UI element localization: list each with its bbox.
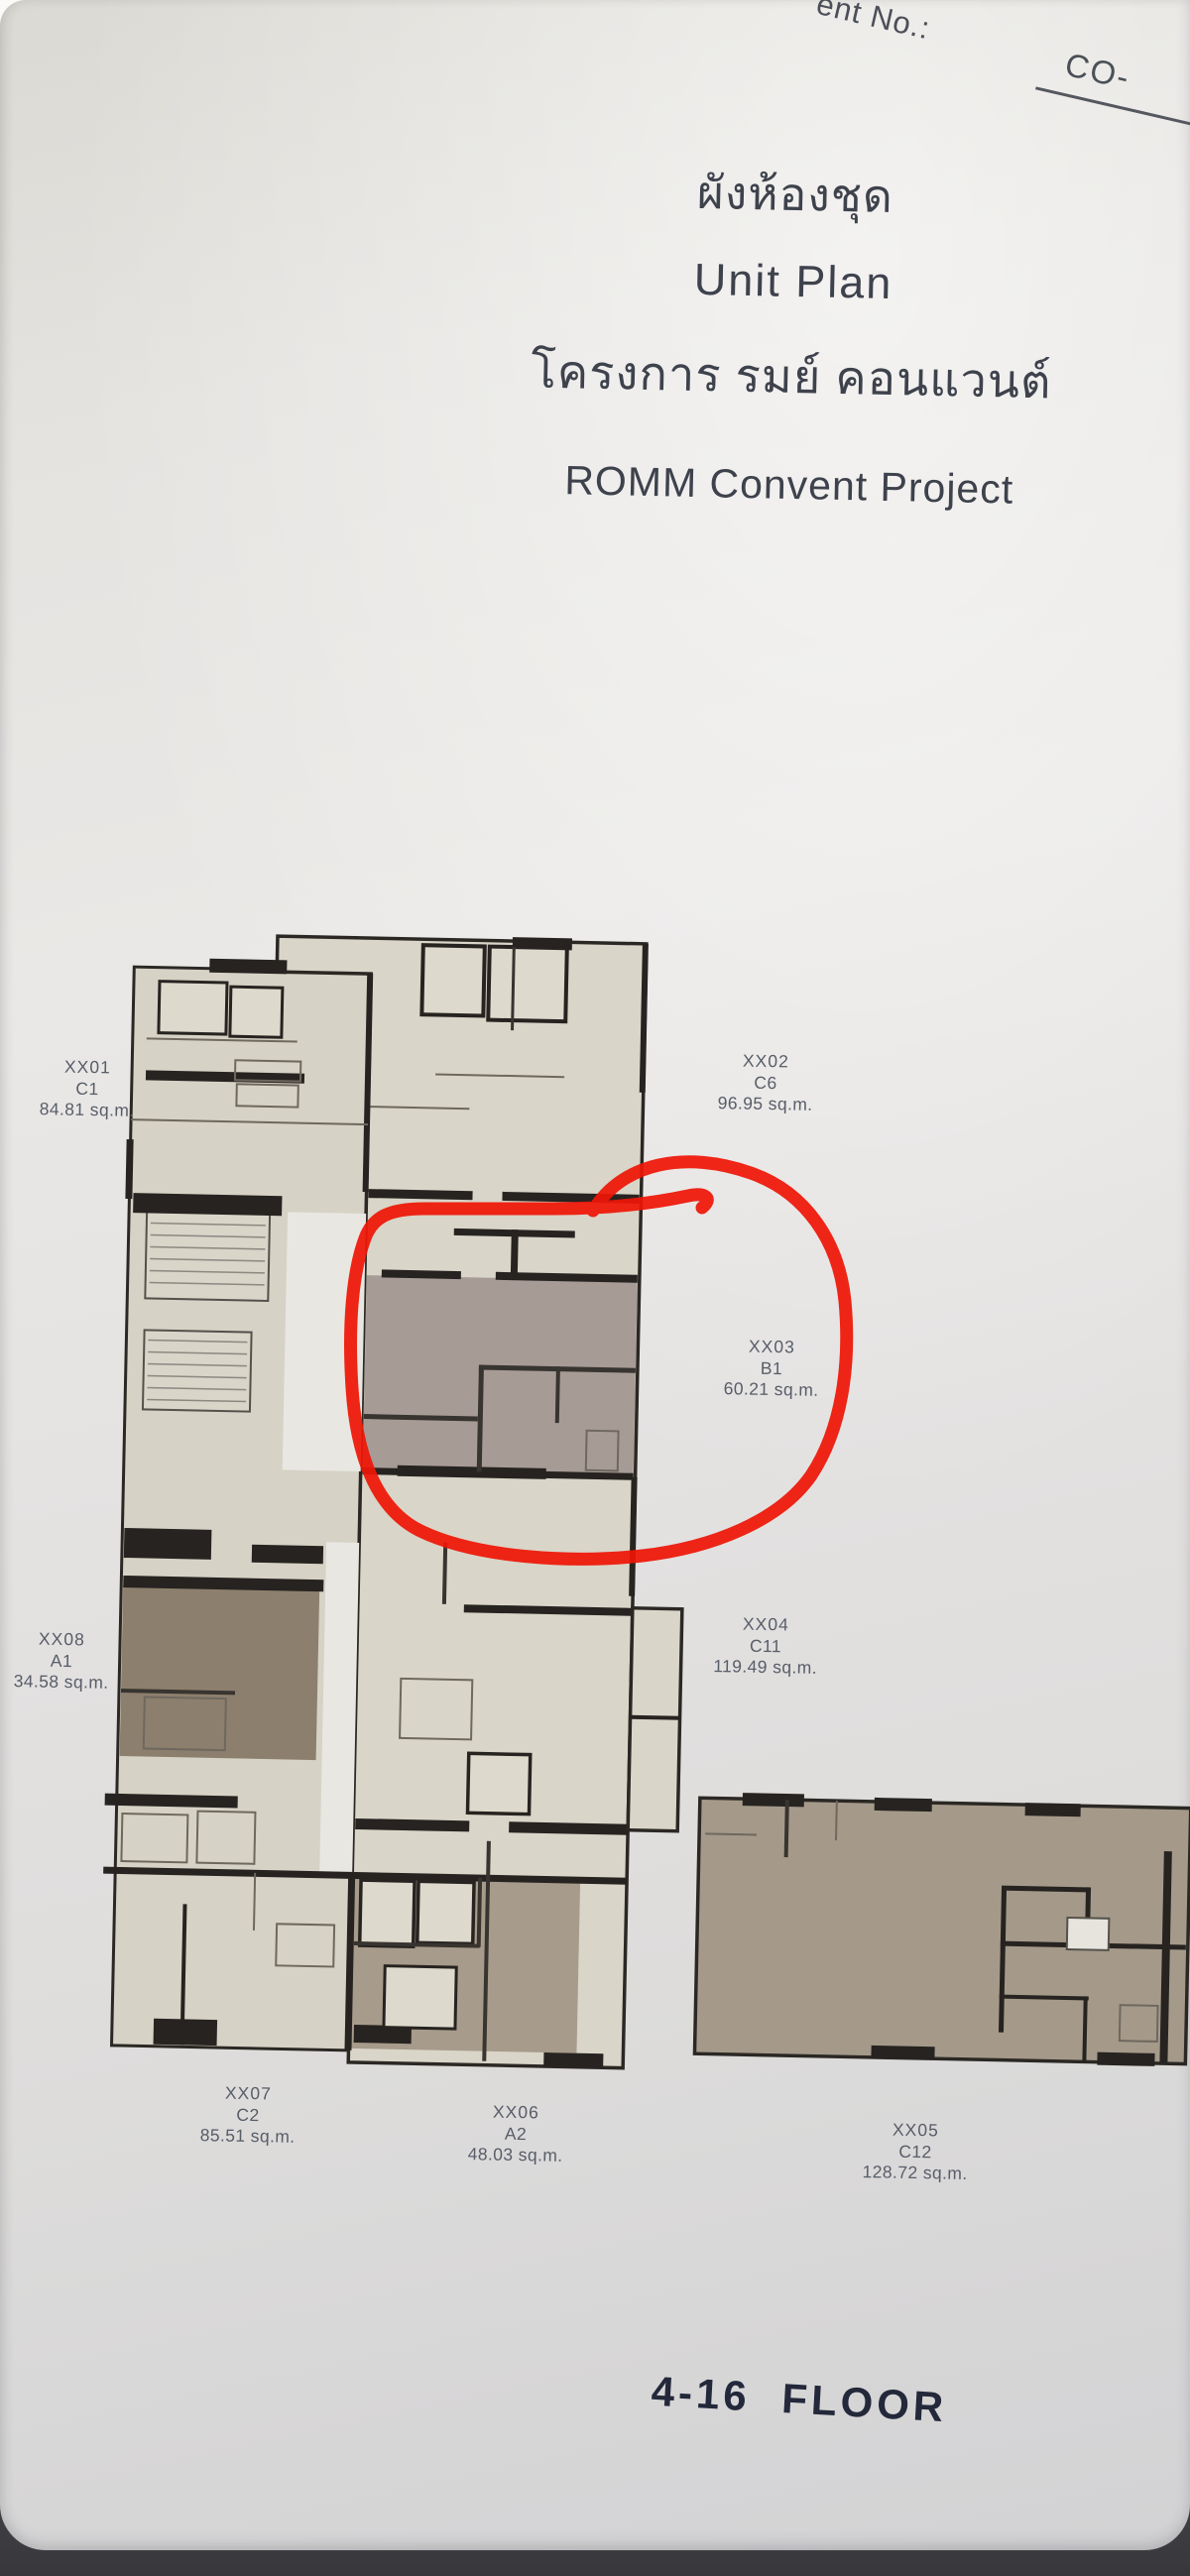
photographed-document-page: ent No.: CO- ผังห้องชุด Unit Plan โครงกา… [0, 0, 1190, 2550]
unit-id: XX03 [688, 1336, 855, 1359]
unit-type: C6 [684, 1071, 847, 1095]
unit-type: B1 [688, 1356, 855, 1380]
unit-id: XX02 [684, 1050, 847, 1074]
unit-id: XX08 [0, 1628, 144, 1652]
unit-label-xx02: XX02 C6 96.95 sq.m. [683, 1050, 847, 1116]
unit-label-xx01: XX01 C1 84.81 sq.m. [7, 1056, 167, 1122]
unit-xx08-area [120, 1585, 320, 1760]
right-wing-outline [694, 1798, 1190, 2063]
unit-label-xx03: XX03 B1 60.21 sq.m. [687, 1336, 855, 1402]
unit-area: 85.51 sq.m. [164, 2125, 330, 2149]
floor-plan-drawing [0, 0, 1190, 2550]
unit-type: C11 [682, 1634, 849, 1658]
left-wing-outline [112, 967, 372, 2050]
unit-type: A1 [0, 1649, 143, 1673]
unit-area: 84.81 sq.m. [7, 1099, 166, 1122]
building-masses [111, 933, 1190, 2079]
unit-label-xx07: XX07 C2 85.51 sq.m. [164, 2082, 331, 2149]
unit-id: XX04 [682, 1613, 849, 1637]
unit-id: XX07 [165, 2082, 331, 2106]
unit-area: 34.58 sq.m. [0, 1671, 143, 1695]
unit-label-xx05: XX05 C12 128.72 sq.m. [830, 2119, 1000, 2185]
unit-label-xx08: XX08 A1 34.58 sq.m. [0, 1628, 144, 1695]
unit-area: 128.72 sq.m. [830, 2162, 999, 2185]
unit-area: 60.21 sq.m. [687, 1378, 854, 1402]
corridor-lower [319, 1542, 359, 1876]
unit-type: C1 [8, 1077, 167, 1101]
unit-id: XX06 [432, 2101, 599, 2125]
unit-xx04-bay [628, 1608, 682, 1831]
unit-id: XX05 [831, 2119, 1000, 2143]
unit-id: XX01 [8, 1056, 167, 1080]
unit-area: 96.95 sq.m. [683, 1093, 846, 1116]
unit-label-xx04: XX04 C11 119.49 sq.m. [681, 1613, 849, 1680]
unit-label-xx06: XX06 A2 48.03 sq.m. [431, 2101, 599, 2167]
unit-xx03-area [363, 1275, 638, 1475]
unit-type: C12 [831, 2140, 1000, 2164]
unit-area: 48.03 sq.m. [431, 2144, 598, 2167]
unit-type: C2 [165, 2103, 331, 2127]
unit-area: 119.49 sq.m. [681, 1656, 848, 1680]
unit-type: A2 [432, 2122, 599, 2146]
